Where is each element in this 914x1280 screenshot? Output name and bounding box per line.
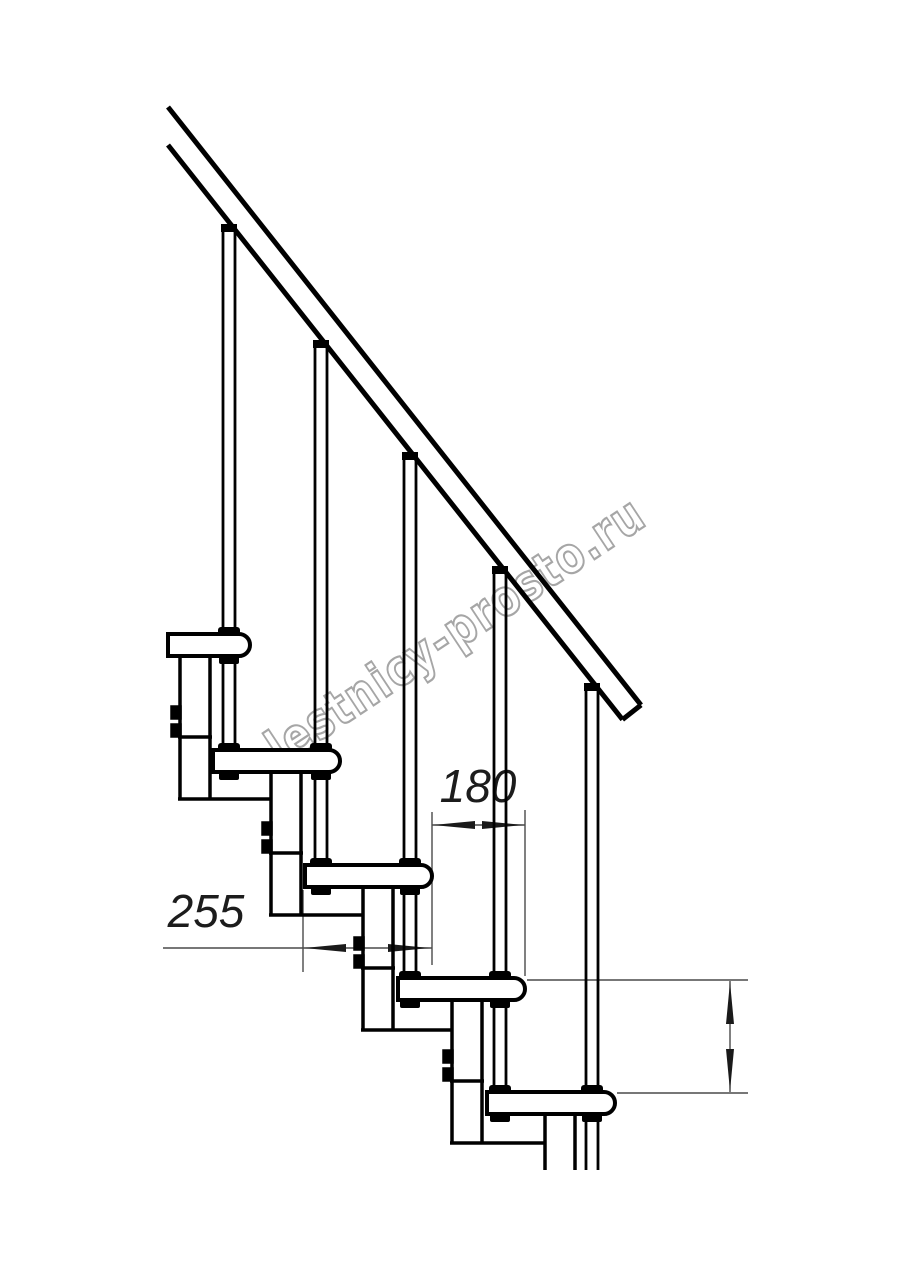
- rod-nut-icon: [311, 887, 331, 895]
- step-tread-1: [168, 634, 250, 656]
- stair-side-view: lestnicy-prosto.ru 255 180: [0, 0, 914, 1280]
- bolt-icon: [355, 938, 363, 949]
- staircase-technical-drawing: lestnicy-prosto.ru 255 180: [0, 0, 914, 1280]
- rod-nut-icon: [219, 656, 239, 664]
- rod-fitting-icon: [399, 971, 421, 979]
- step-tread-2: [213, 750, 340, 772]
- bolt-icon: [263, 841, 271, 852]
- rod-nut-icon: [400, 1000, 420, 1008]
- rod-fitting-icon: [581, 1085, 603, 1093]
- rod-nut-icon: [311, 772, 331, 780]
- rod-fitting-icon: [218, 627, 240, 635]
- baluster-rod-3: [402, 452, 418, 1008]
- handrail-end-cap: [623, 705, 642, 720]
- arrow-left-icon: [304, 944, 346, 952]
- bolt-icon: [444, 1069, 452, 1080]
- rod-nut-icon: [219, 772, 239, 780]
- bolt-icon: [263, 823, 271, 834]
- baluster-rod-1: [221, 224, 237, 780]
- rod-fitting-icon: [218, 743, 240, 751]
- bolt-icon: [444, 1051, 452, 1062]
- dimension-180: 180: [432, 760, 525, 976]
- rod-fitting-icon: [489, 1085, 511, 1093]
- arrow-up-icon: [726, 982, 734, 1024]
- rod-nut-icon: [400, 887, 420, 895]
- dimension-label-255: 255: [167, 885, 245, 937]
- support-module-5: [545, 1114, 575, 1170]
- rod-fitting-icon: [310, 743, 332, 751]
- rod-nut-icon: [490, 1114, 510, 1122]
- bolt-icon: [355, 956, 363, 967]
- baluster-rod-4: [492, 566, 508, 1122]
- step-tread-4: [398, 978, 525, 1000]
- rod-fitting-icon: [489, 971, 511, 979]
- arrow-right-icon: [482, 821, 524, 829]
- rod-fitting-icon: [310, 858, 332, 866]
- baluster-rod-2: [313, 340, 329, 895]
- step-tread-3: [305, 865, 432, 887]
- arrow-left-icon: [433, 821, 475, 829]
- rod-nut-icon: [582, 1114, 602, 1122]
- rod-fitting-icon: [399, 858, 421, 866]
- rod-nut-icon: [490, 1000, 510, 1008]
- arrow-down-icon: [726, 1049, 734, 1091]
- step-tread-5: [487, 1092, 615, 1114]
- bolt-icon: [172, 725, 180, 736]
- bolt-icon: [172, 707, 180, 718]
- dimension-225: [527, 980, 748, 1093]
